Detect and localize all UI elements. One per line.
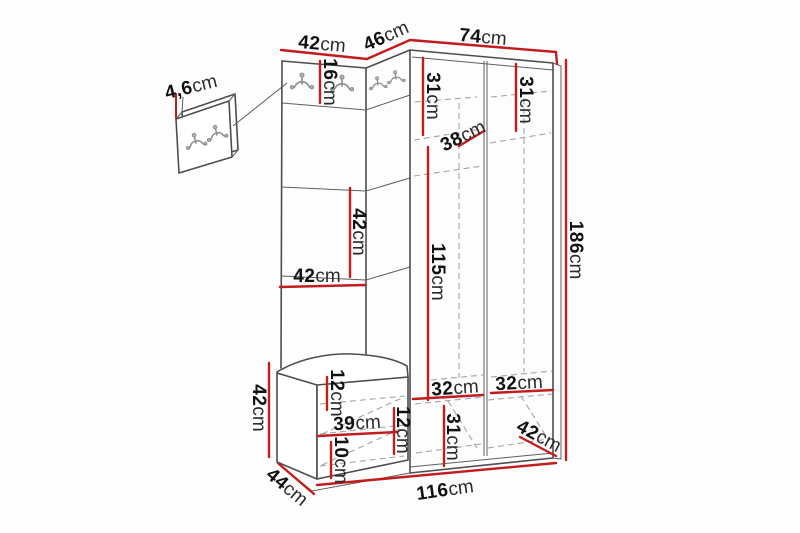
dim-label-right-top-shelf-height: 31cm — [516, 76, 537, 123]
bench-side-face — [277, 373, 317, 479]
dim-label-bench-top-inset: 12cm — [327, 369, 348, 416]
dim-label-bench-right-inset: 12cm — [393, 406, 414, 453]
dim-label-bottom-compartment-height: 31cm — [443, 413, 464, 460]
dim-label-top-width: 42cm — [297, 31, 346, 56]
furniture-dimension-diagram: 4,6cm — [0, 0, 800, 533]
diagram-canvas: 4,6cm — [0, 0, 800, 533]
dim-label-bench-shelf-gap: 10cm — [331, 436, 352, 483]
dim-label-panel-segment-height: 42cm — [349, 208, 370, 255]
left-panel-left-edge — [281, 61, 282, 368]
dim-label-hanging-space-height: 115cm — [428, 243, 449, 300]
dim-label-right-compartment-width: 32cm — [495, 371, 544, 394]
dim-label-wardrobe-width: 74cm — [458, 24, 507, 49]
dim-label-panel-width: 42cm — [293, 266, 340, 287]
dim-label-bench-inner-width: 39cm — [333, 411, 382, 434]
dim-label-left-compartment-width: 32cm — [431, 376, 480, 400]
dim-label-left-top-shelf-height: 31cm — [423, 72, 444, 119]
dim-label-bench-height: 42cm — [249, 384, 270, 431]
dim-label-total-height: 186cm — [566, 221, 587, 280]
dim-label-hook-strip-height: 16cm — [320, 58, 341, 105]
